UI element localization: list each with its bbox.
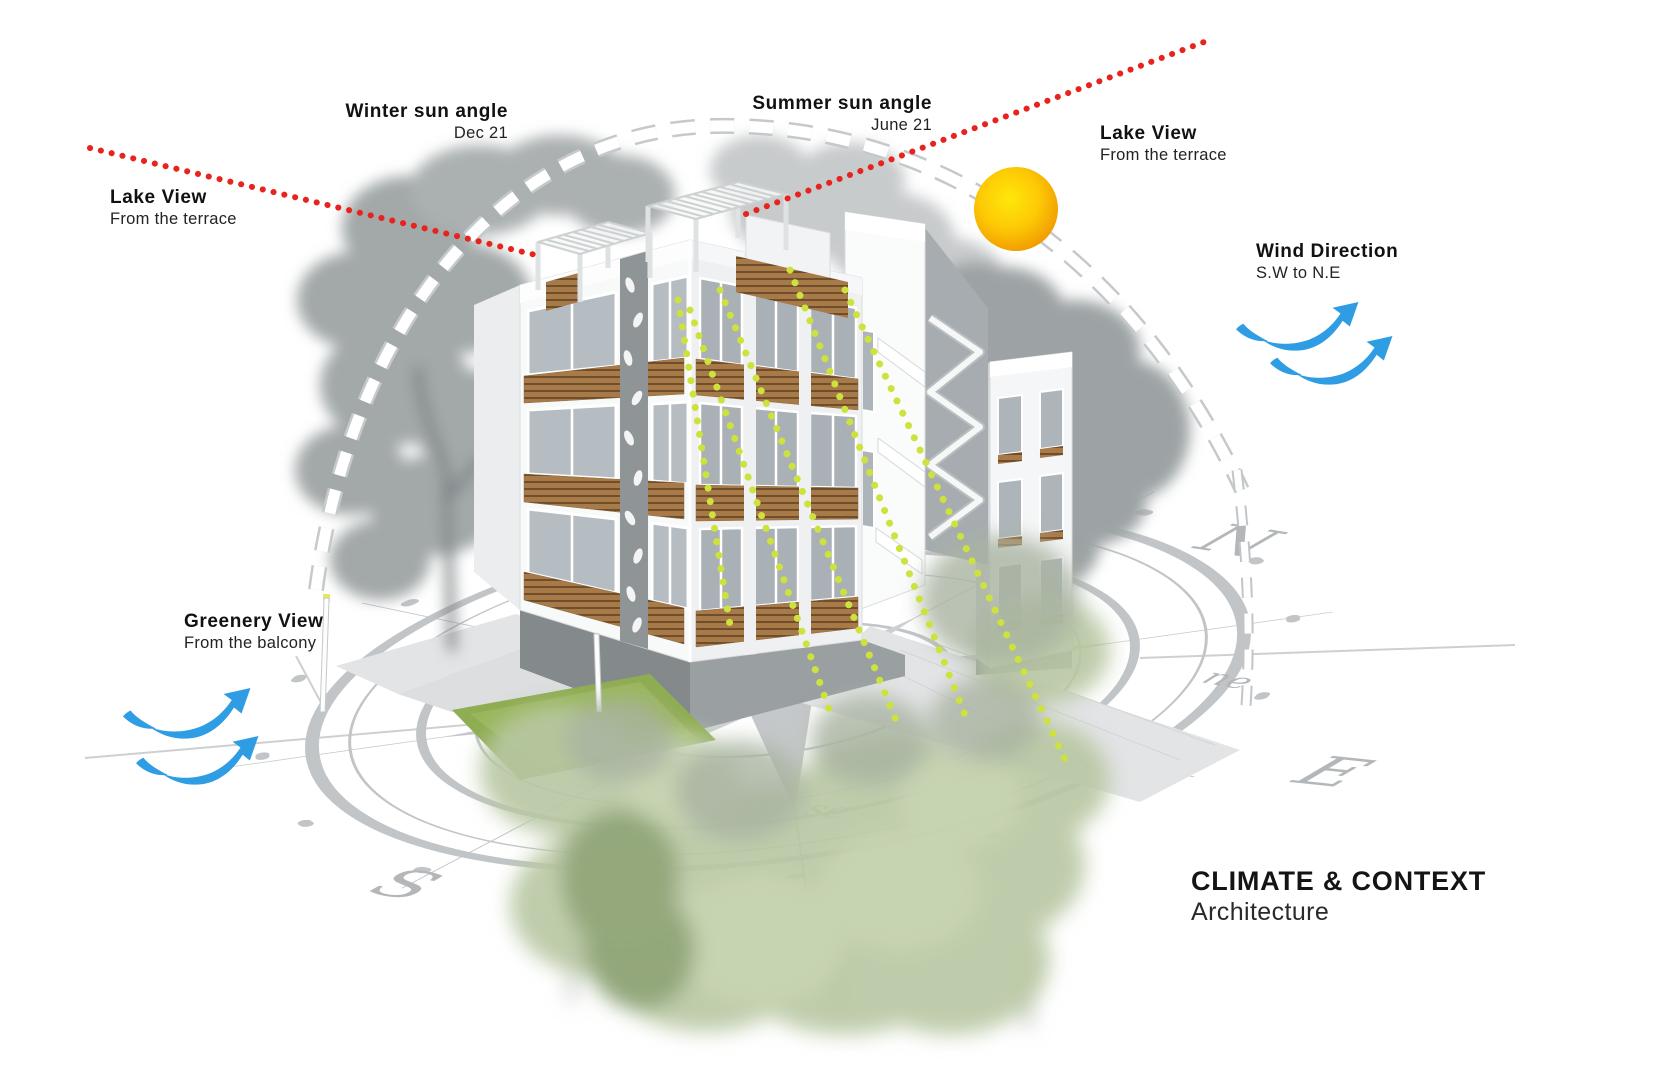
compass-letter-s: S xyxy=(356,860,456,910)
title-block: CLIMATE & CONTEXT Architecture xyxy=(1191,866,1486,927)
annotation-subtitle: From the terrace xyxy=(110,210,237,229)
wind-arrow-icon xyxy=(123,688,251,739)
annotation-greenery-view: Greenery View From the balcony xyxy=(184,611,323,653)
climate-context-diagram: N E S ne se xyxy=(0,0,1657,1080)
wind-arrow-icon xyxy=(1236,302,1358,351)
facade-left xyxy=(520,240,690,662)
annotation-wind-direction: Wind Direction S.W to N.E xyxy=(1256,241,1398,283)
annotation-winter-sun: Winter sun angle Dec 21 xyxy=(290,101,508,143)
annotation-subtitle: June 21 xyxy=(712,116,932,135)
windows-left xyxy=(528,276,688,609)
annotation-title: Greenery View xyxy=(184,611,323,633)
annotation-subtitle: From the balcony xyxy=(184,634,323,653)
perforated-screen xyxy=(620,251,648,649)
wind-arrow-icon xyxy=(1270,336,1392,385)
annotation-summer-sun: Summer sun angle June 21 xyxy=(712,93,932,135)
facade-west-sliver xyxy=(474,285,520,610)
annotation-title: Winter sun angle xyxy=(290,101,508,123)
annotation-title: Summer sun angle xyxy=(712,93,932,115)
annotation-title: Lake View xyxy=(110,187,237,209)
annotation-lake-view-right: Lake View From the terrace xyxy=(1100,123,1227,165)
page-title: CLIMATE & CONTEXT xyxy=(1191,866,1486,897)
compass-letter-e: E xyxy=(1277,747,1387,796)
page-subtitle: Architecture xyxy=(1191,898,1486,927)
annotation-lake-view-left: Lake View From the terrace xyxy=(110,187,237,229)
sun-icon xyxy=(974,167,1058,251)
annotation-subtitle: Dec 21 xyxy=(290,124,508,143)
annotation-title: Lake View xyxy=(1100,123,1227,145)
wind-arrow-icon xyxy=(136,736,258,785)
annotation-title: Wind Direction xyxy=(1256,241,1398,263)
annotation-subtitle: From the terrace xyxy=(1100,146,1227,165)
annotation-subtitle: S.W to N.E xyxy=(1256,264,1398,283)
